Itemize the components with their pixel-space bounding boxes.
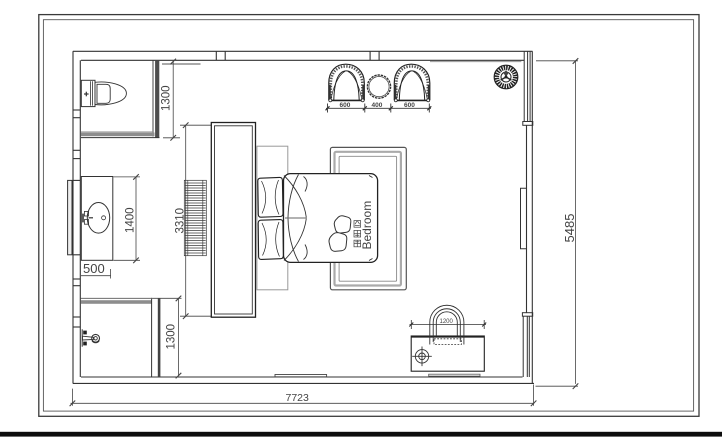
svg-text:600: 600 <box>404 102 415 109</box>
svg-text:1300: 1300 <box>161 85 173 111</box>
svg-text:1200: 1200 <box>440 319 454 325</box>
svg-text:500: 500 <box>83 261 105 276</box>
svg-text:600: 600 <box>340 102 351 109</box>
svg-text:1400: 1400 <box>125 207 137 233</box>
svg-text:5485: 5485 <box>562 214 577 243</box>
svg-text:Bedroom: Bedroom <box>360 201 374 250</box>
svg-text:7723: 7723 <box>286 392 310 404</box>
svg-text:1300: 1300 <box>166 324 178 350</box>
svg-text:400: 400 <box>372 102 383 109</box>
svg-text:3310: 3310 <box>175 208 187 234</box>
